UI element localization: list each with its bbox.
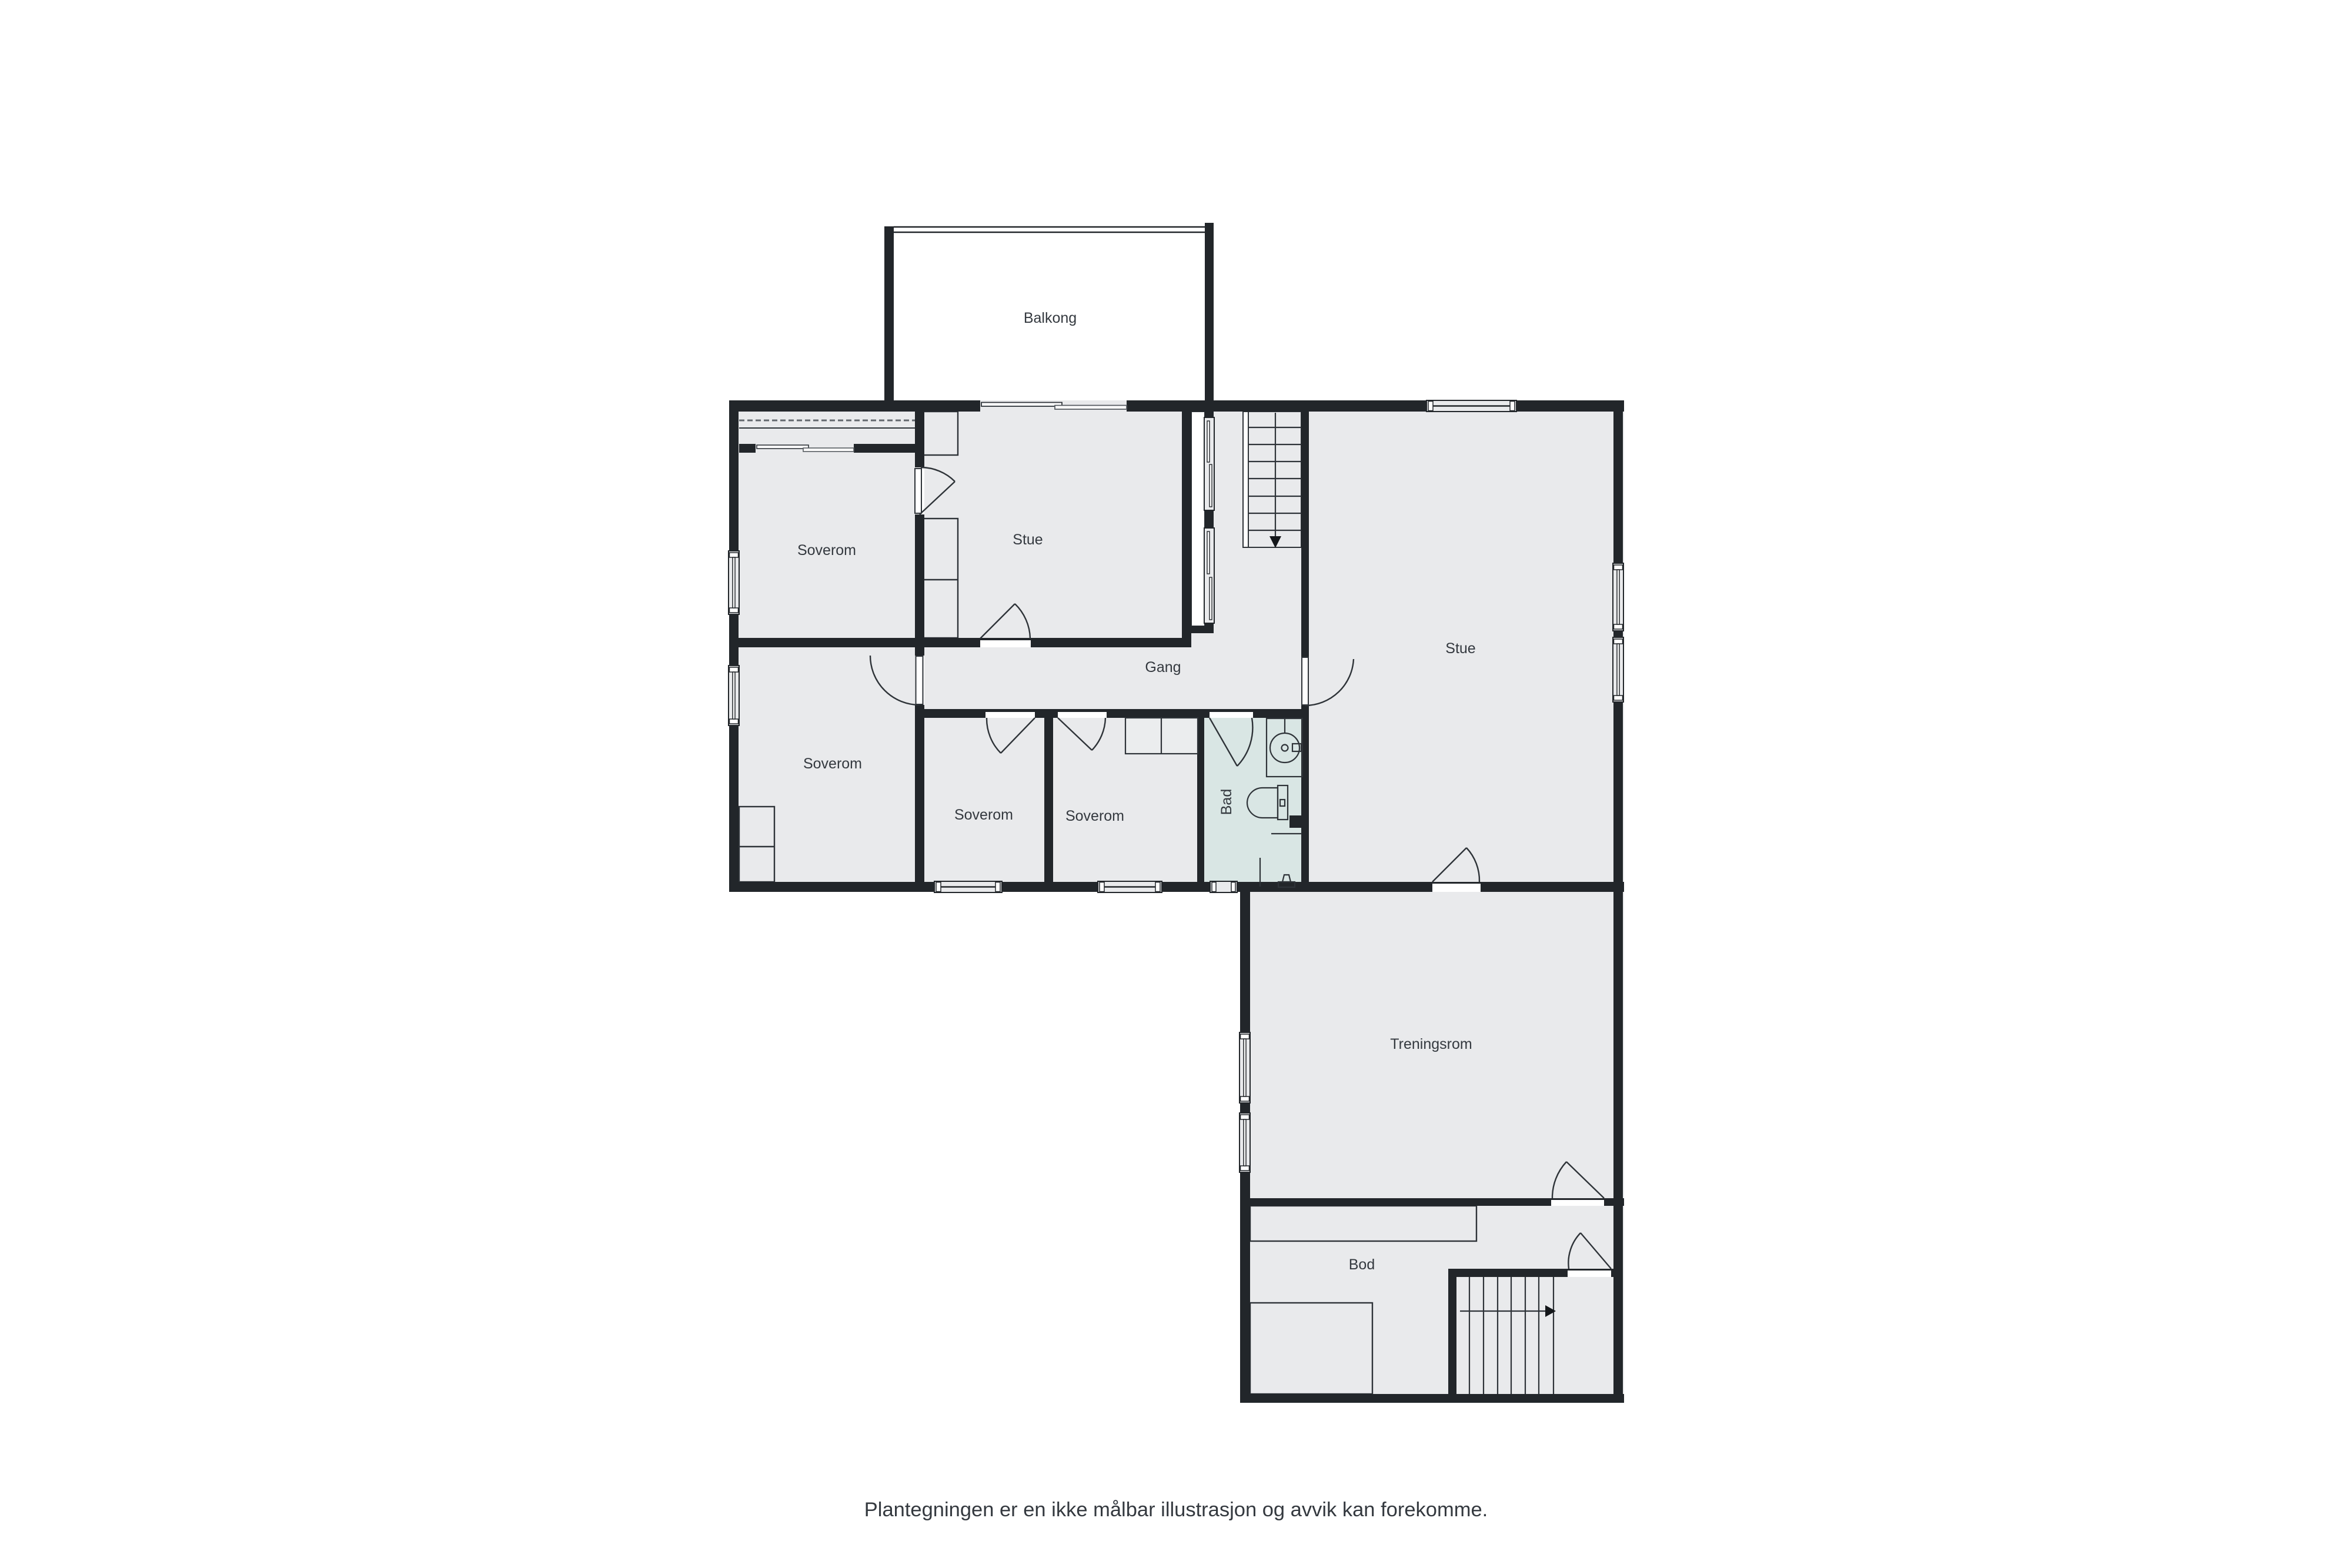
svg-text:Bad: Bad bbox=[1218, 789, 1235, 815]
svg-text:Balkong: Balkong bbox=[1024, 310, 1077, 326]
svg-text:Gang: Gang bbox=[1145, 659, 1181, 676]
svg-text:Stue: Stue bbox=[1013, 531, 1043, 548]
svg-text:Treningsrom: Treningsrom bbox=[1390, 1036, 1472, 1052]
svg-text:Plantegningen er en ikke målba: Plantegningen er en ikke målbar illustra… bbox=[864, 1499, 1488, 1521]
svg-text:Bod: Bod bbox=[1349, 1256, 1375, 1273]
svg-text:Soverom: Soverom bbox=[803, 755, 862, 772]
svg-text:Stue: Stue bbox=[1445, 640, 1475, 657]
svg-text:Soverom: Soverom bbox=[954, 807, 1013, 823]
svg-text:Soverom: Soverom bbox=[1065, 808, 1124, 824]
svg-text:Soverom: Soverom bbox=[797, 542, 856, 559]
